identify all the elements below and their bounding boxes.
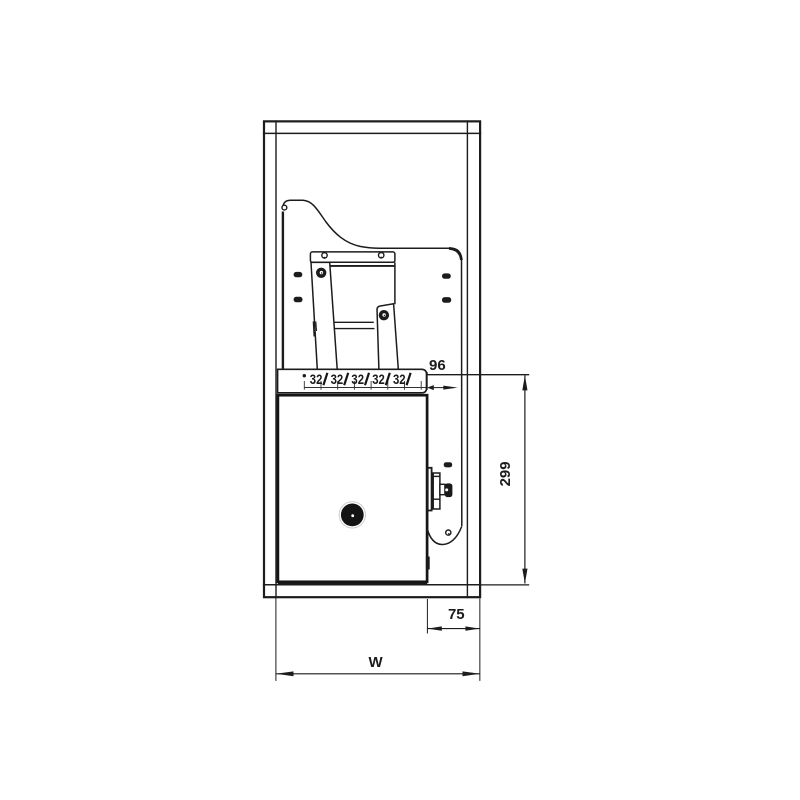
- svg-text:299: 299: [497, 461, 514, 486]
- svg-text:32: 32: [331, 371, 344, 387]
- svg-text:32: 32: [310, 371, 323, 387]
- svg-text:32: 32: [351, 371, 364, 387]
- svg-text:W: W: [369, 654, 384, 671]
- svg-text:96: 96: [429, 357, 446, 374]
- svg-text:32: 32: [372, 371, 385, 387]
- svg-text:75: 75: [448, 606, 465, 623]
- svg-text:32: 32: [393, 371, 406, 387]
